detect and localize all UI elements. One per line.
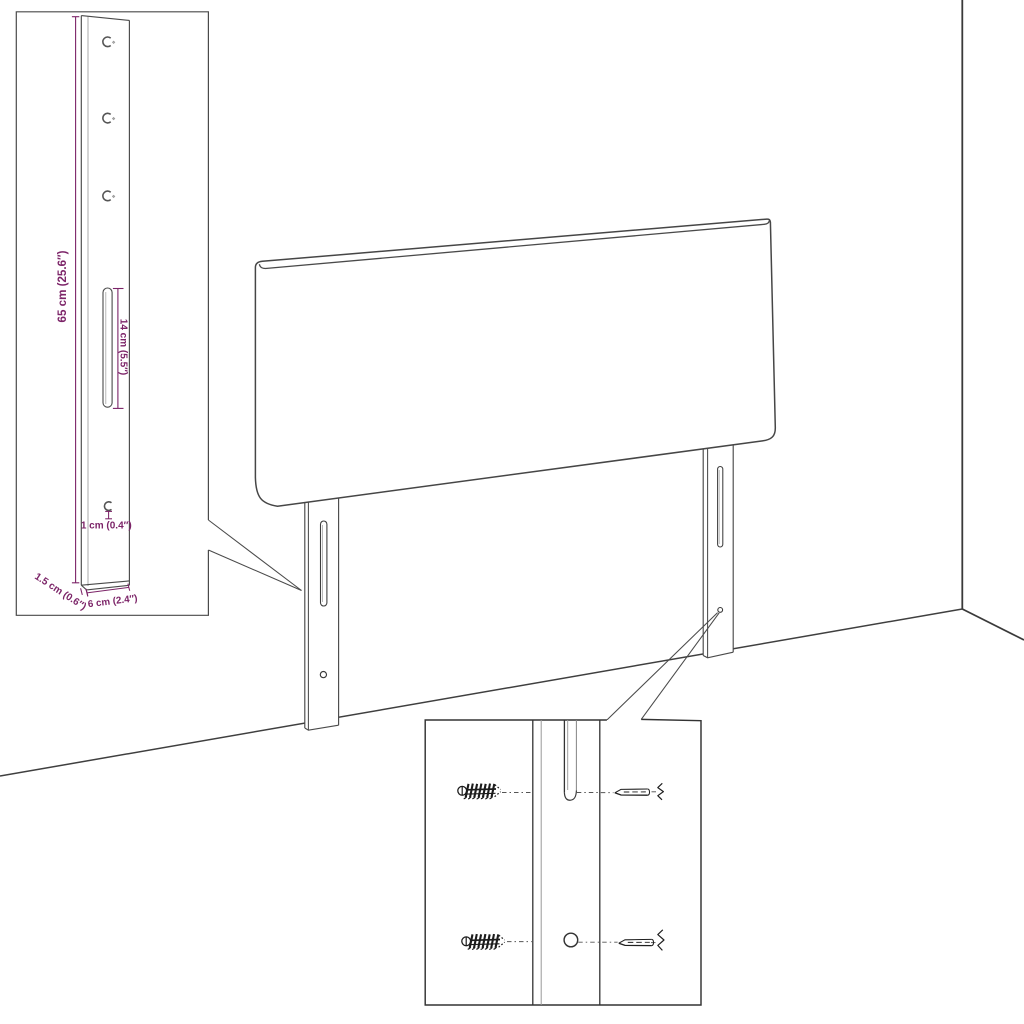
svg-text:14 cm (5.5″): 14 cm (5.5″) bbox=[118, 319, 129, 375]
svg-text:65 cm (25.6″): 65 cm (25.6″) bbox=[56, 250, 69, 322]
svg-text:1 cm (0.4″): 1 cm (0.4″) bbox=[81, 520, 132, 531]
